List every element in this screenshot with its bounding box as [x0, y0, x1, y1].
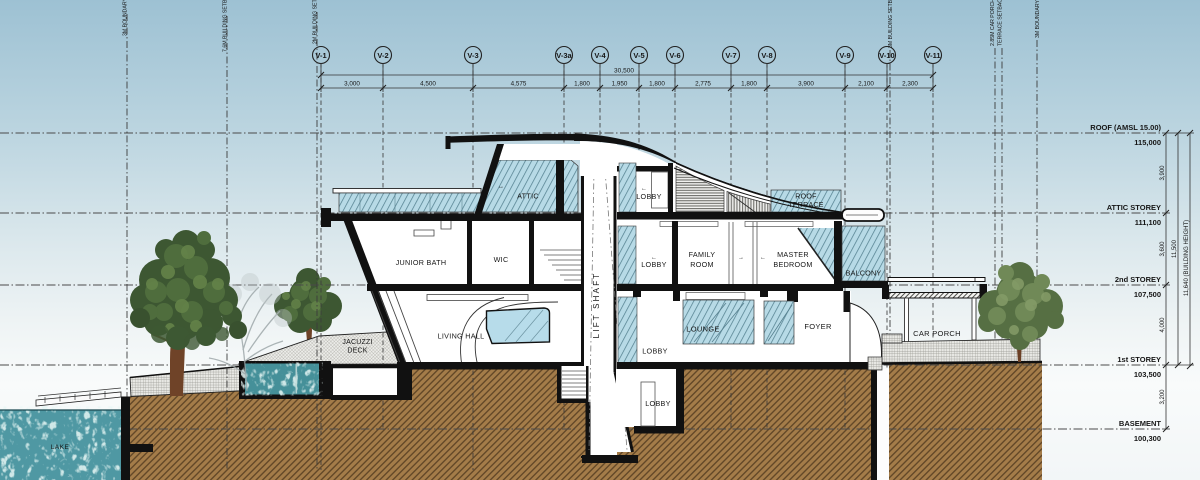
svg-text:1st STOREY: 1st STOREY	[1117, 355, 1161, 364]
svg-text:103,500: 103,500	[1134, 370, 1161, 379]
svg-text:JACUZZI: JACUZZI	[342, 339, 372, 346]
svg-text:BALCONY: BALCONY	[846, 269, 882, 278]
svg-text:V-4: V-4	[594, 51, 606, 60]
svg-text:2nd STOREY: 2nd STOREY	[1115, 275, 1161, 284]
svg-text:2M BUILDING SETBACK: 2M BUILDING SETBACK	[313, 0, 319, 44]
svg-text:V-1: V-1	[315, 51, 326, 60]
svg-text:V-3: V-3	[467, 51, 478, 60]
svg-text:V-3a: V-3a	[556, 51, 572, 60]
svg-text:↔: ↔	[498, 184, 504, 190]
svg-text:107,500: 107,500	[1134, 290, 1161, 299]
svg-text:TERRACE SETBACK: TERRACE SETBACK	[998, 0, 1004, 46]
svg-text:ATTIC STOREY: ATTIC STOREY	[1107, 203, 1161, 212]
svg-text:V-11: V-11	[925, 51, 940, 60]
svg-text:2,775: 2,775	[695, 81, 711, 88]
svg-text:115,000: 115,000	[1134, 138, 1161, 147]
svg-text:WIC: WIC	[494, 255, 509, 264]
svg-text:V-10: V-10	[879, 51, 894, 60]
svg-text:3,600: 3,600	[1160, 241, 1166, 257]
svg-text:ROOM: ROOM	[690, 260, 714, 269]
svg-text:7.6M BUILDING SETBACK: 7.6M BUILDING SETBACK	[223, 0, 229, 52]
svg-text:V-8: V-8	[761, 51, 772, 60]
svg-text:11,500: 11,500	[1172, 239, 1178, 258]
svg-text:2,300: 2,300	[902, 81, 918, 88]
svg-text:3,000: 3,000	[344, 81, 360, 88]
svg-text:3,900: 3,900	[798, 81, 814, 88]
svg-text:LOBBY: LOBBY	[642, 347, 667, 356]
svg-text:V-6: V-6	[669, 51, 680, 60]
svg-text:1,800: 1,800	[741, 81, 757, 88]
svg-text:V-2: V-2	[377, 51, 388, 60]
svg-text:←: ←	[760, 255, 766, 261]
svg-text:1,950: 1,950	[612, 81, 628, 88]
svg-text:1,800: 1,800	[574, 81, 590, 88]
svg-text:3M BUILDING SETBACK: 3M BUILDING SETBACK	[888, 0, 894, 48]
svg-text:CAR PORCH: CAR PORCH	[913, 329, 961, 338]
svg-text:ROOF: ROOF	[795, 194, 816, 201]
svg-text:1,800: 1,800	[649, 81, 665, 88]
svg-text:V-7: V-7	[725, 51, 736, 60]
svg-text:FAMILY: FAMILY	[689, 250, 716, 259]
svg-text:LIVING HALL: LIVING HALL	[438, 332, 485, 341]
svg-text:11,640 (BUILDING HEIGHT): 11,640 (BUILDING HEIGHT)	[1184, 220, 1190, 296]
svg-text:4,500: 4,500	[420, 81, 436, 88]
svg-text:LOBBY: LOBBY	[645, 399, 670, 408]
svg-text:LAKE: LAKE	[51, 444, 70, 451]
svg-text:DECK: DECK	[347, 348, 367, 355]
svg-text:111,100: 111,100	[1135, 218, 1161, 227]
svg-text:V-9: V-9	[839, 51, 850, 60]
svg-text:LOBBY: LOBBY	[636, 192, 661, 201]
svg-text:V-5: V-5	[633, 51, 644, 60]
svg-text:2,100: 2,100	[858, 81, 874, 88]
svg-text:LOUNGE: LOUNGE	[686, 325, 719, 334]
svg-text:MASTER: MASTER	[777, 250, 809, 259]
svg-text:LIFT SHAFT: LIFT SHAFT	[592, 272, 601, 339]
svg-text:→: →	[738, 255, 744, 261]
svg-text:BASEMENT: BASEMENT	[1119, 419, 1162, 428]
svg-text:2.85M CAR PORCH: 2.85M CAR PORCH	[990, 0, 996, 46]
svg-text:3M BOUNDARY LINE: 3M BOUNDARY LINE	[1035, 0, 1041, 38]
svg-text:BEDROOM: BEDROOM	[773, 260, 812, 269]
svg-text:4,575: 4,575	[511, 81, 527, 88]
svg-text:3,900: 3,900	[1160, 165, 1166, 181]
svg-text:100,300: 100,300	[1134, 434, 1161, 443]
svg-text:FOYER: FOYER	[804, 322, 832, 331]
svg-text:ATTIC: ATTIC	[517, 192, 539, 201]
svg-text:JUNIOR BATH: JUNIOR BATH	[396, 258, 447, 267]
svg-text:LOBBY: LOBBY	[641, 260, 666, 269]
svg-text:4,000: 4,000	[1160, 317, 1166, 333]
svg-text:30,500: 30,500	[614, 68, 634, 75]
svg-text:3M BOUNDARY LINE: 3M BOUNDARY LINE	[123, 0, 129, 36]
svg-text:ROOF (AMSL 15.00): ROOF (AMSL 15.00)	[1090, 123, 1161, 132]
svg-text:3,200: 3,200	[1160, 389, 1166, 405]
